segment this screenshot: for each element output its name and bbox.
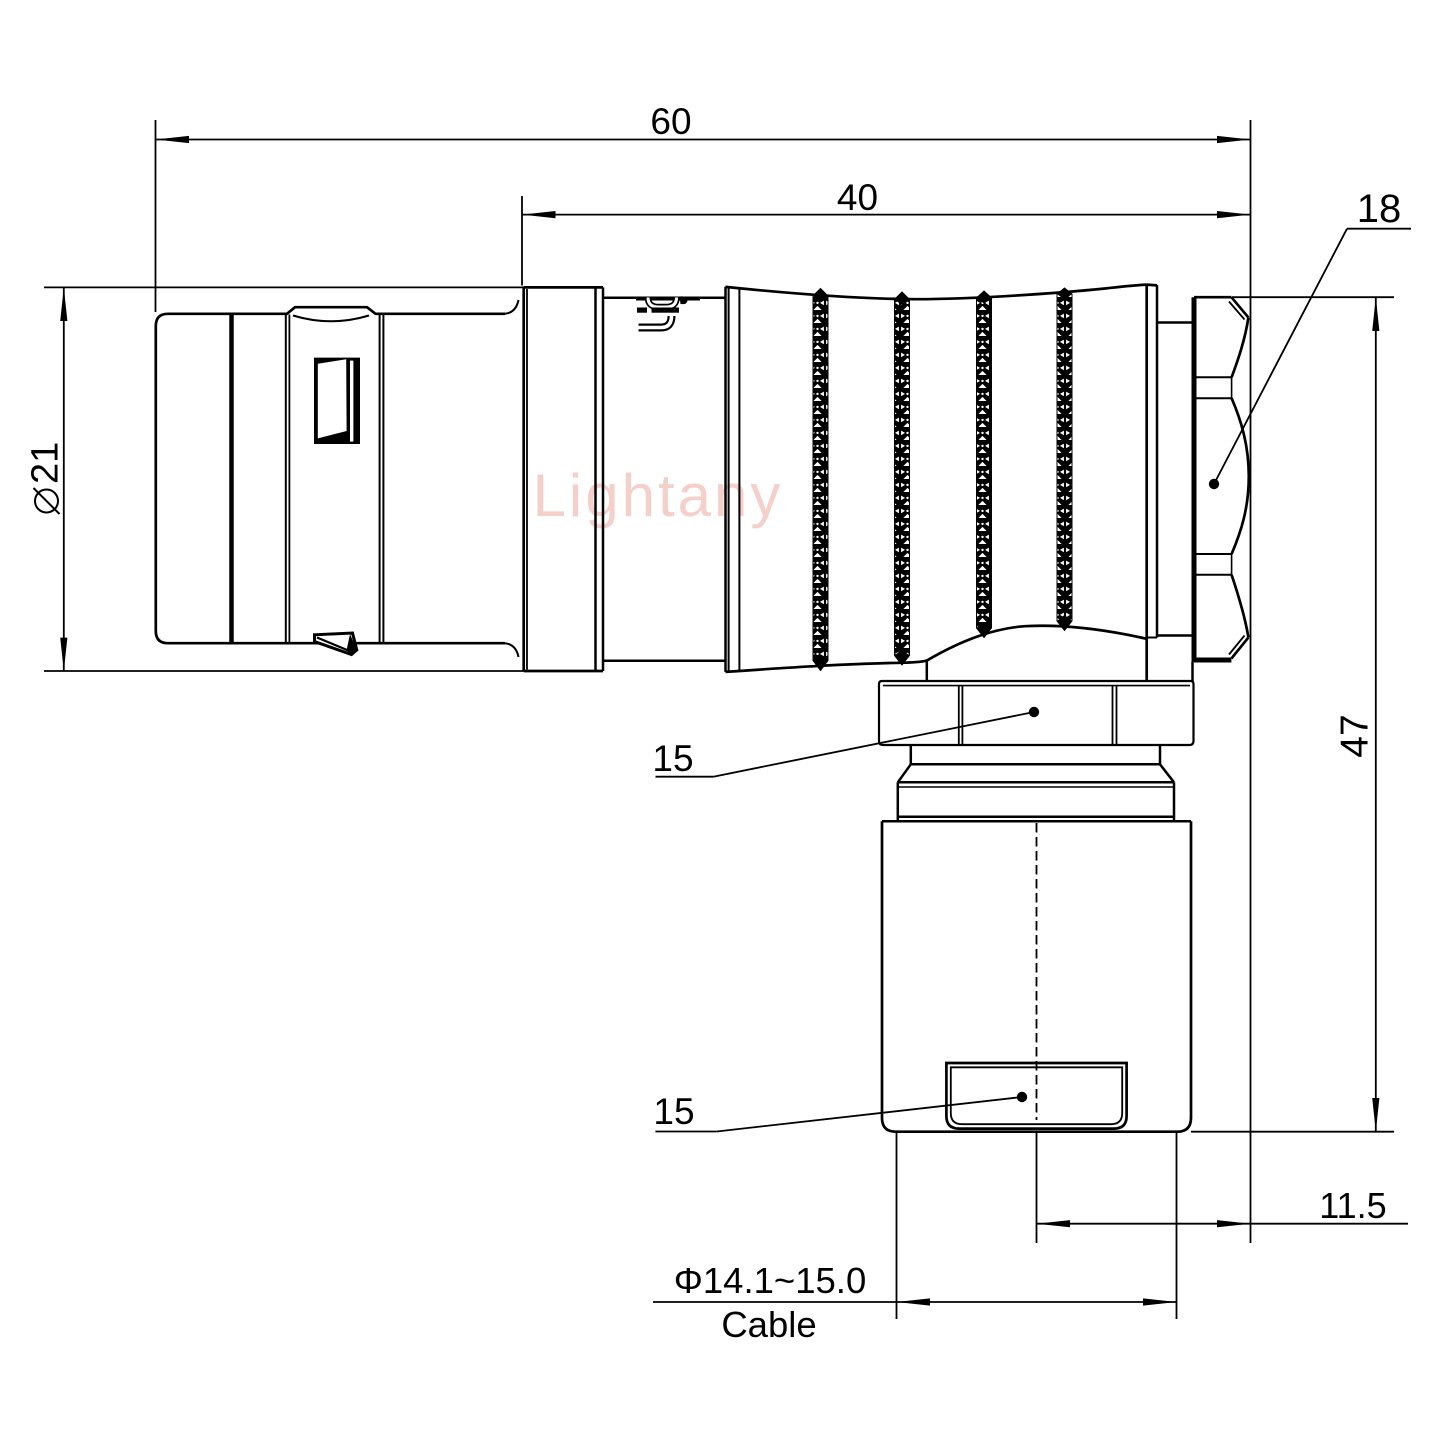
svg-text:Cable: Cable [721,1304,816,1345]
svg-text:18: 18 [1357,187,1402,231]
svg-text:15: 15 [652,738,693,779]
svg-text:47: 47 [1334,714,1377,757]
svg-text:60: 60 [650,101,691,142]
svg-text:Φ14.1~15.0: Φ14.1~15.0 [674,1260,867,1301]
svg-text:21: 21 [25,442,67,484]
svg-text:11.5: 11.5 [1319,1185,1386,1226]
svg-text:Lightany: Lightany [533,462,784,529]
svg-text:15: 15 [653,1091,694,1132]
svg-text:40: 40 [837,177,878,218]
